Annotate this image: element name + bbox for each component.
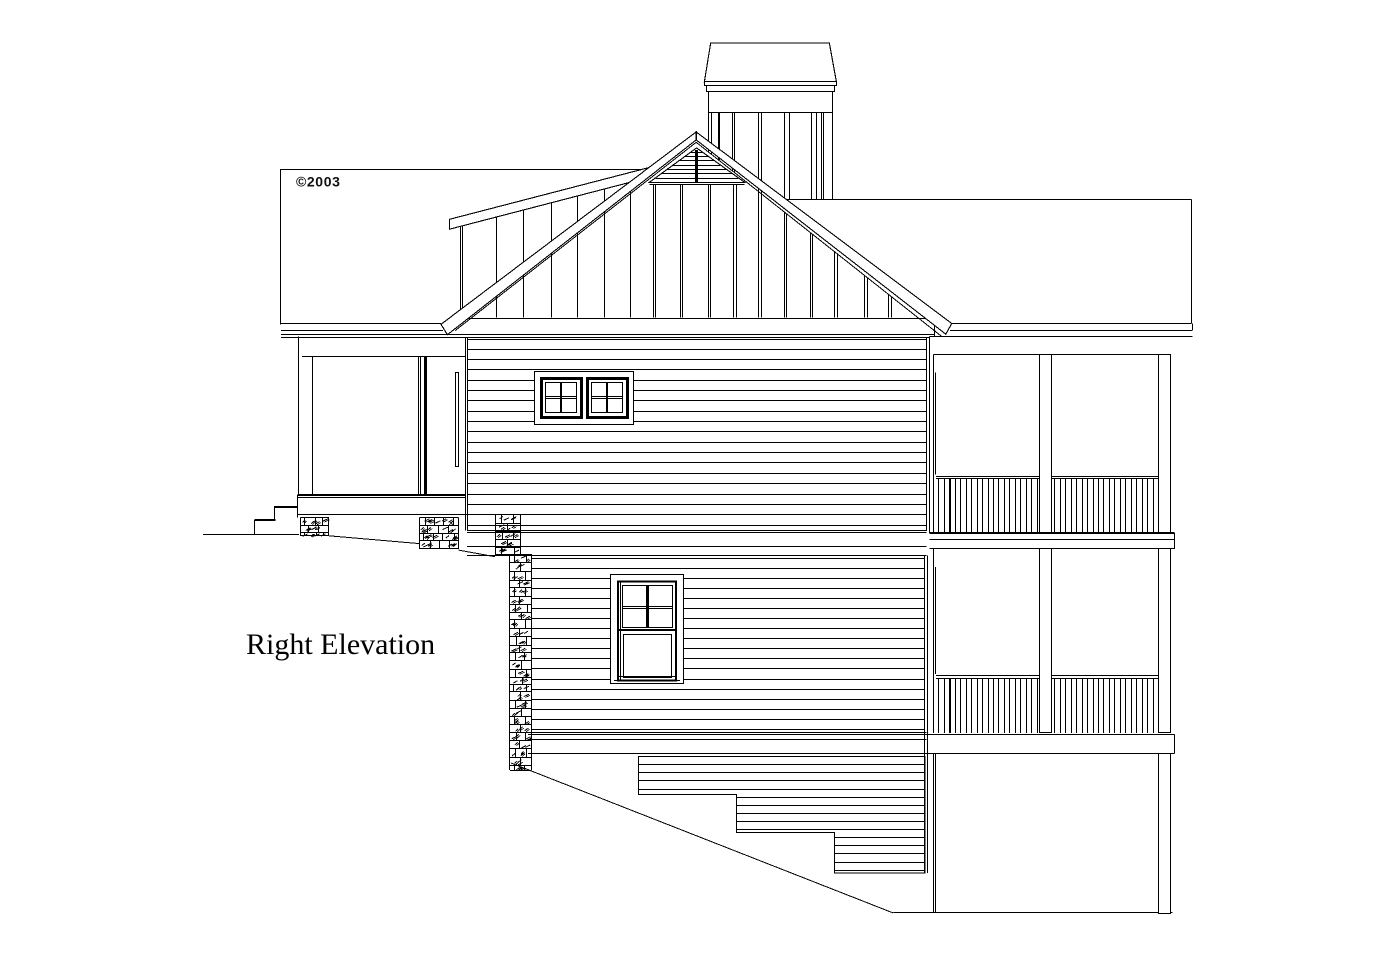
svg-text:©2003: ©2003 <box>296 174 340 190</box>
svg-text:Right Elevation: Right Elevation <box>246 628 435 661</box>
